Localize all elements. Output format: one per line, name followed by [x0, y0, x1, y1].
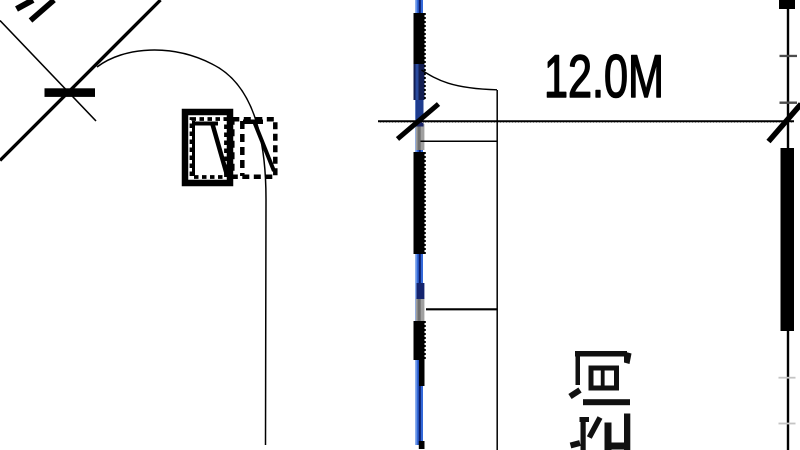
svg-text:12.0M: 12.0M — [544, 44, 664, 111]
